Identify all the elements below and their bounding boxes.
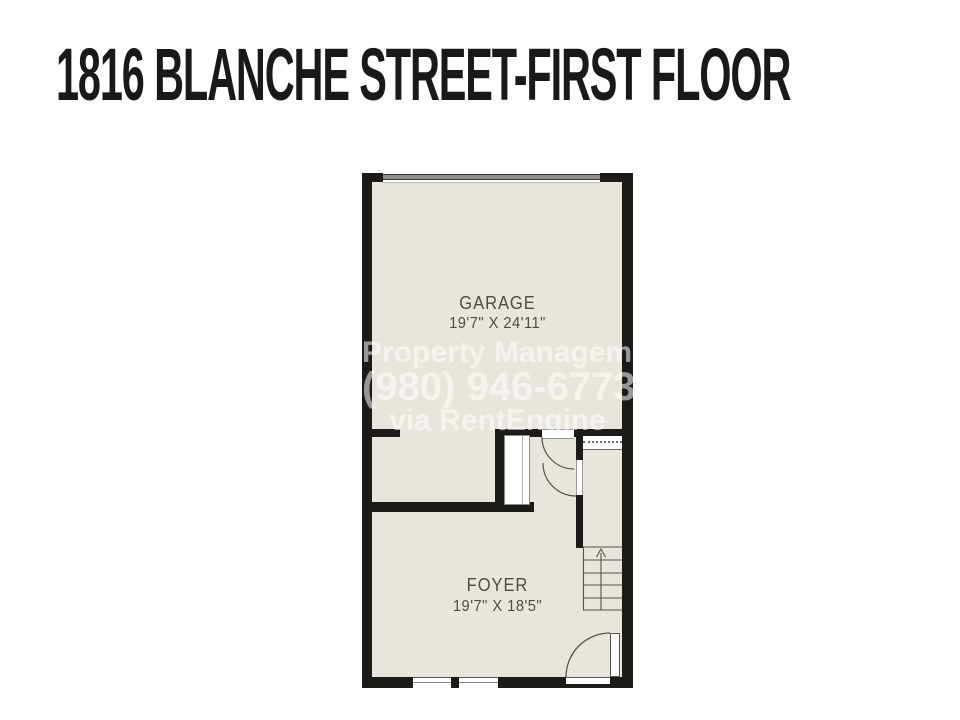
page-title: 1816 BLANCHE STREET-FIRST FLOOR <box>56 38 790 112</box>
door-swing-arc-closet <box>543 463 576 496</box>
garage-room-label: GARAGE <box>373 293 622 314</box>
floorplan-canvas: GARAGE 19'7" X 24'11" FOYER 19'7" X 18'5… <box>362 173 633 688</box>
door-swing-arc-entry <box>566 633 610 677</box>
foyer-room-label: FOYER <box>373 575 622 596</box>
door-swing-arc-hall <box>542 437 574 469</box>
floorplan-page: 1816 BLANCHE STREET-FIRST FLOOR <box>0 0 960 720</box>
foyer-room-dimensions: 19'7" X 18'5" <box>373 598 622 616</box>
garage-room-dimensions: 19'7" X 24'11" <box>373 315 622 333</box>
